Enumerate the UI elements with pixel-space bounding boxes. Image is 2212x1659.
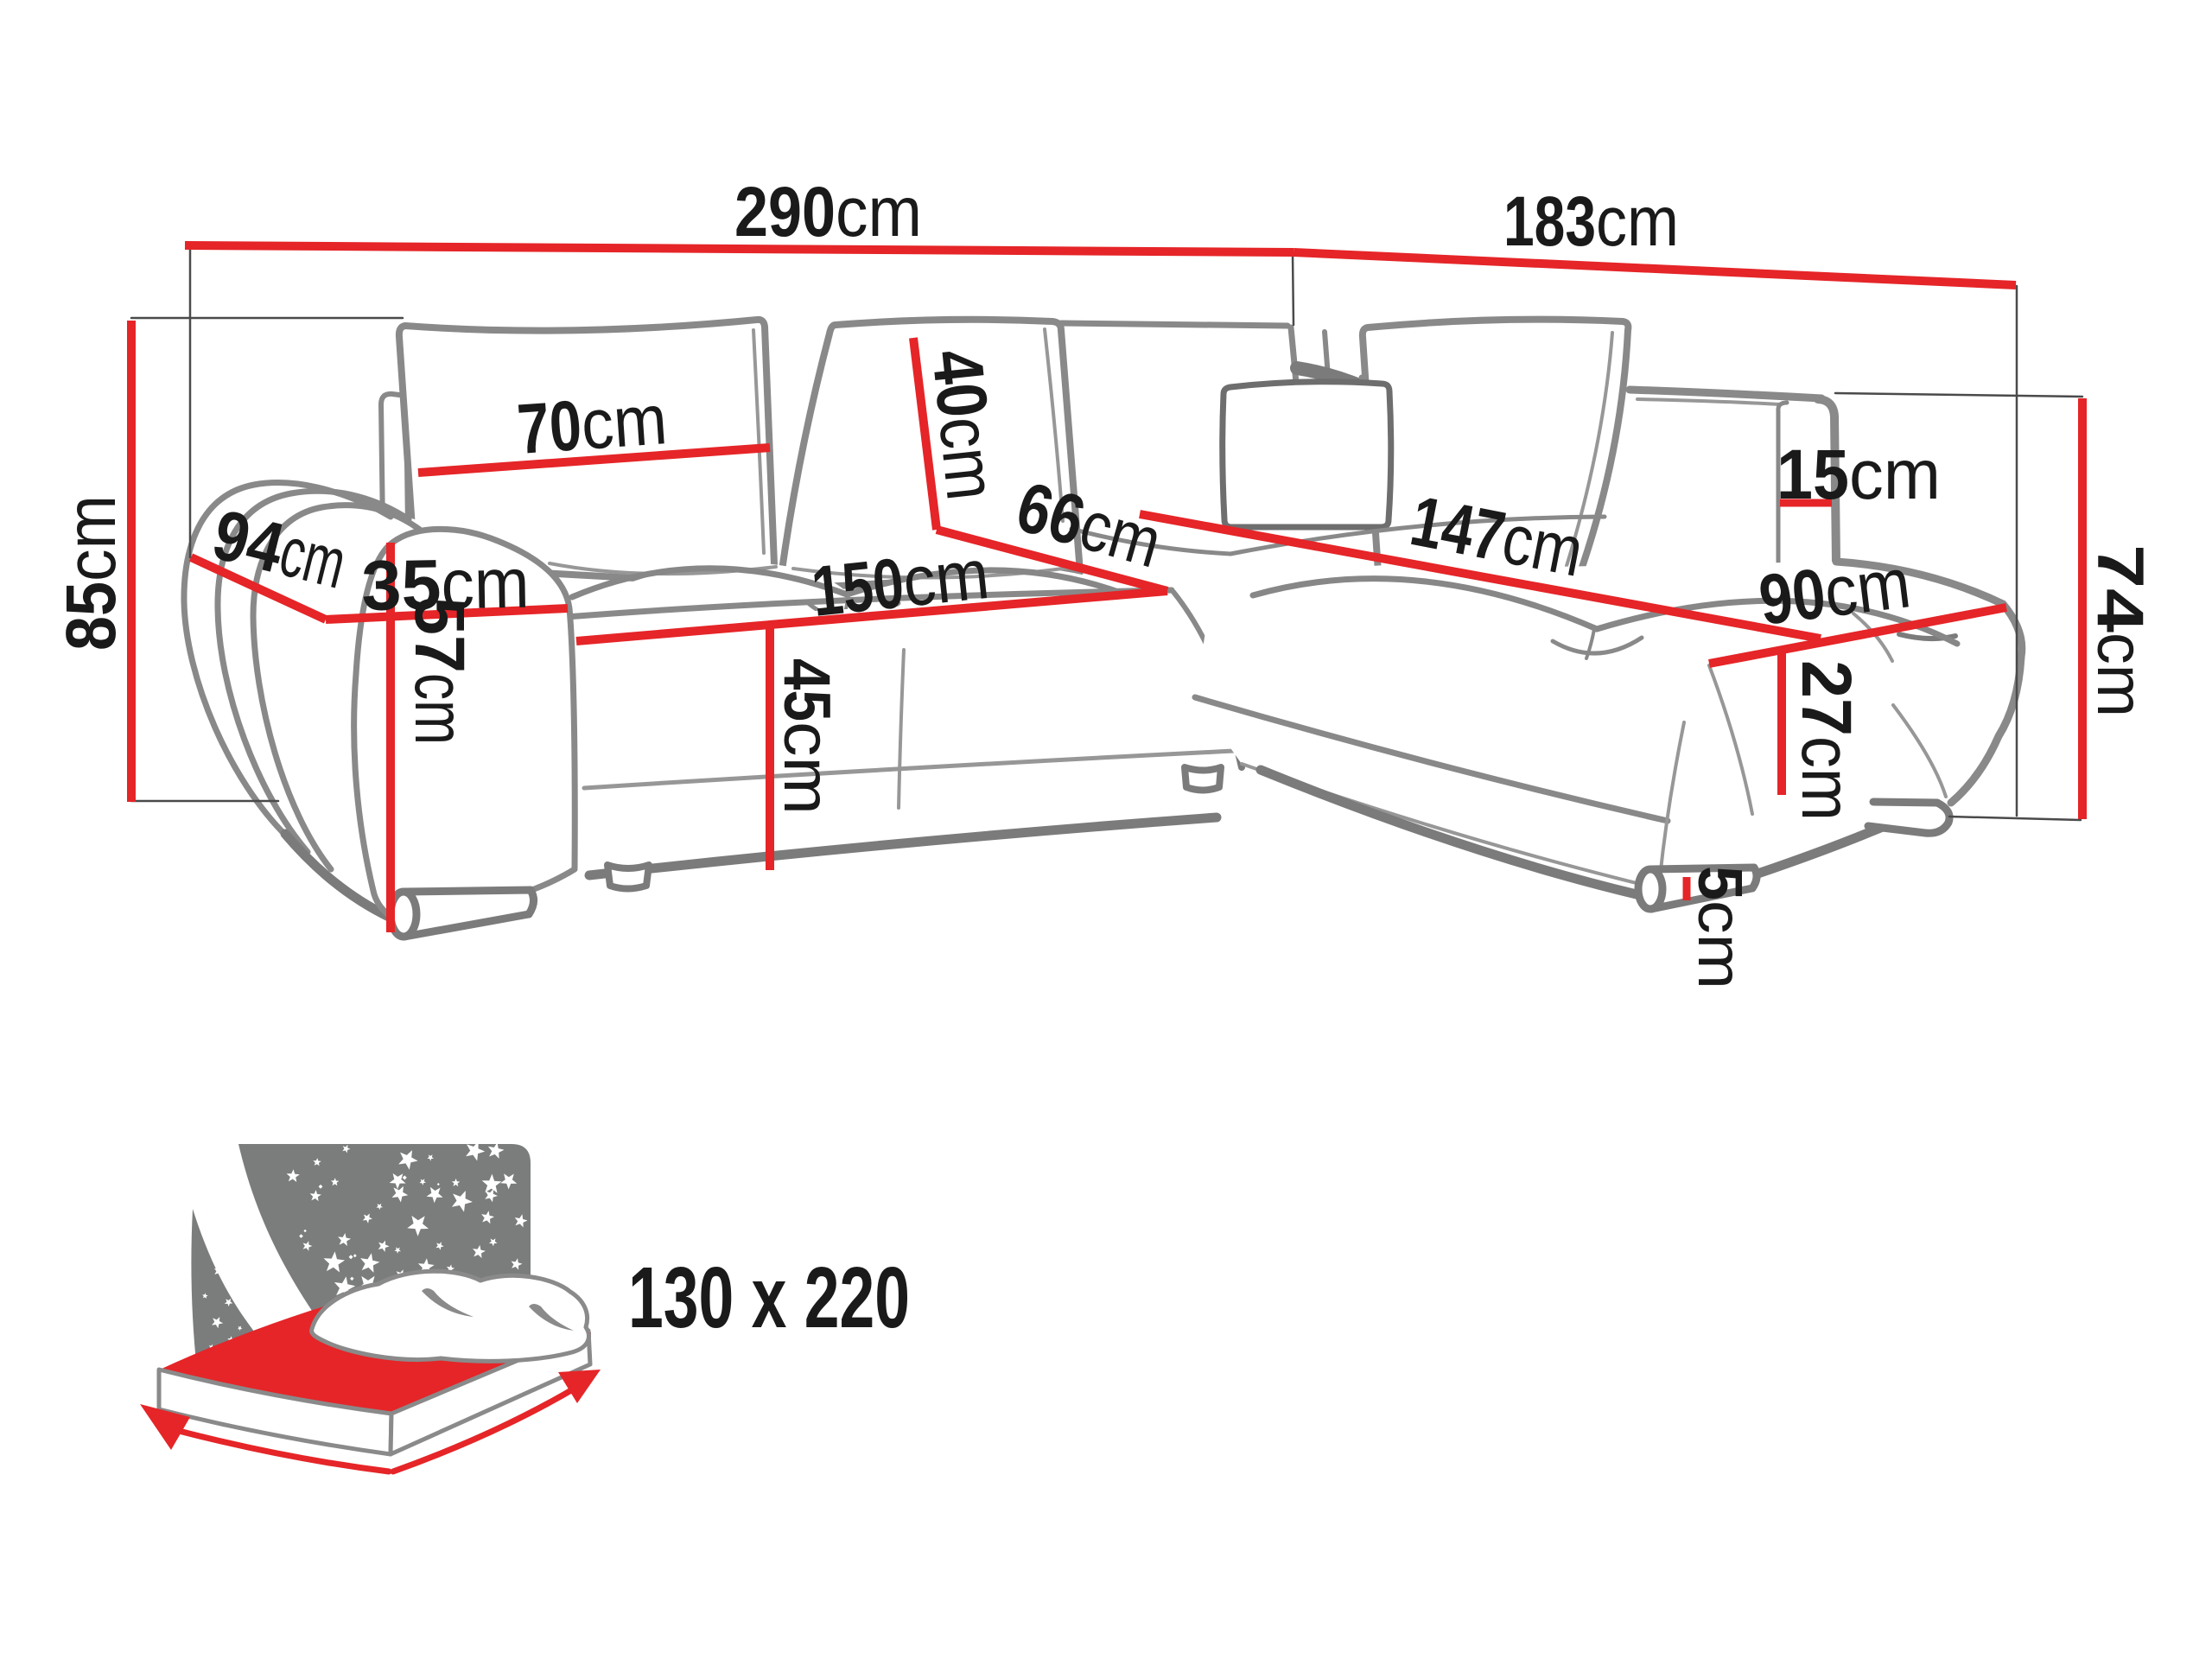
svg-text:70cm: 70cm xyxy=(515,380,670,469)
svg-text:74cm: 74cm xyxy=(2083,544,2157,717)
svg-text:40cm: 40cm xyxy=(917,346,1011,504)
svg-text:57cm: 57cm xyxy=(400,597,479,745)
svg-text:5cm: 5cm xyxy=(1685,866,1754,989)
svg-text:15cm: 15cm xyxy=(1777,435,1941,514)
svg-text:27cm: 27cm xyxy=(1787,660,1866,821)
svg-text:45cm: 45cm xyxy=(770,658,843,815)
svg-text:183cm: 183cm xyxy=(1503,182,1679,261)
svg-text:130 x 220: 130 x 220 xyxy=(628,1249,910,1346)
svg-text:85cm: 85cm xyxy=(52,495,130,651)
svg-text:290cm: 290cm xyxy=(734,173,922,251)
